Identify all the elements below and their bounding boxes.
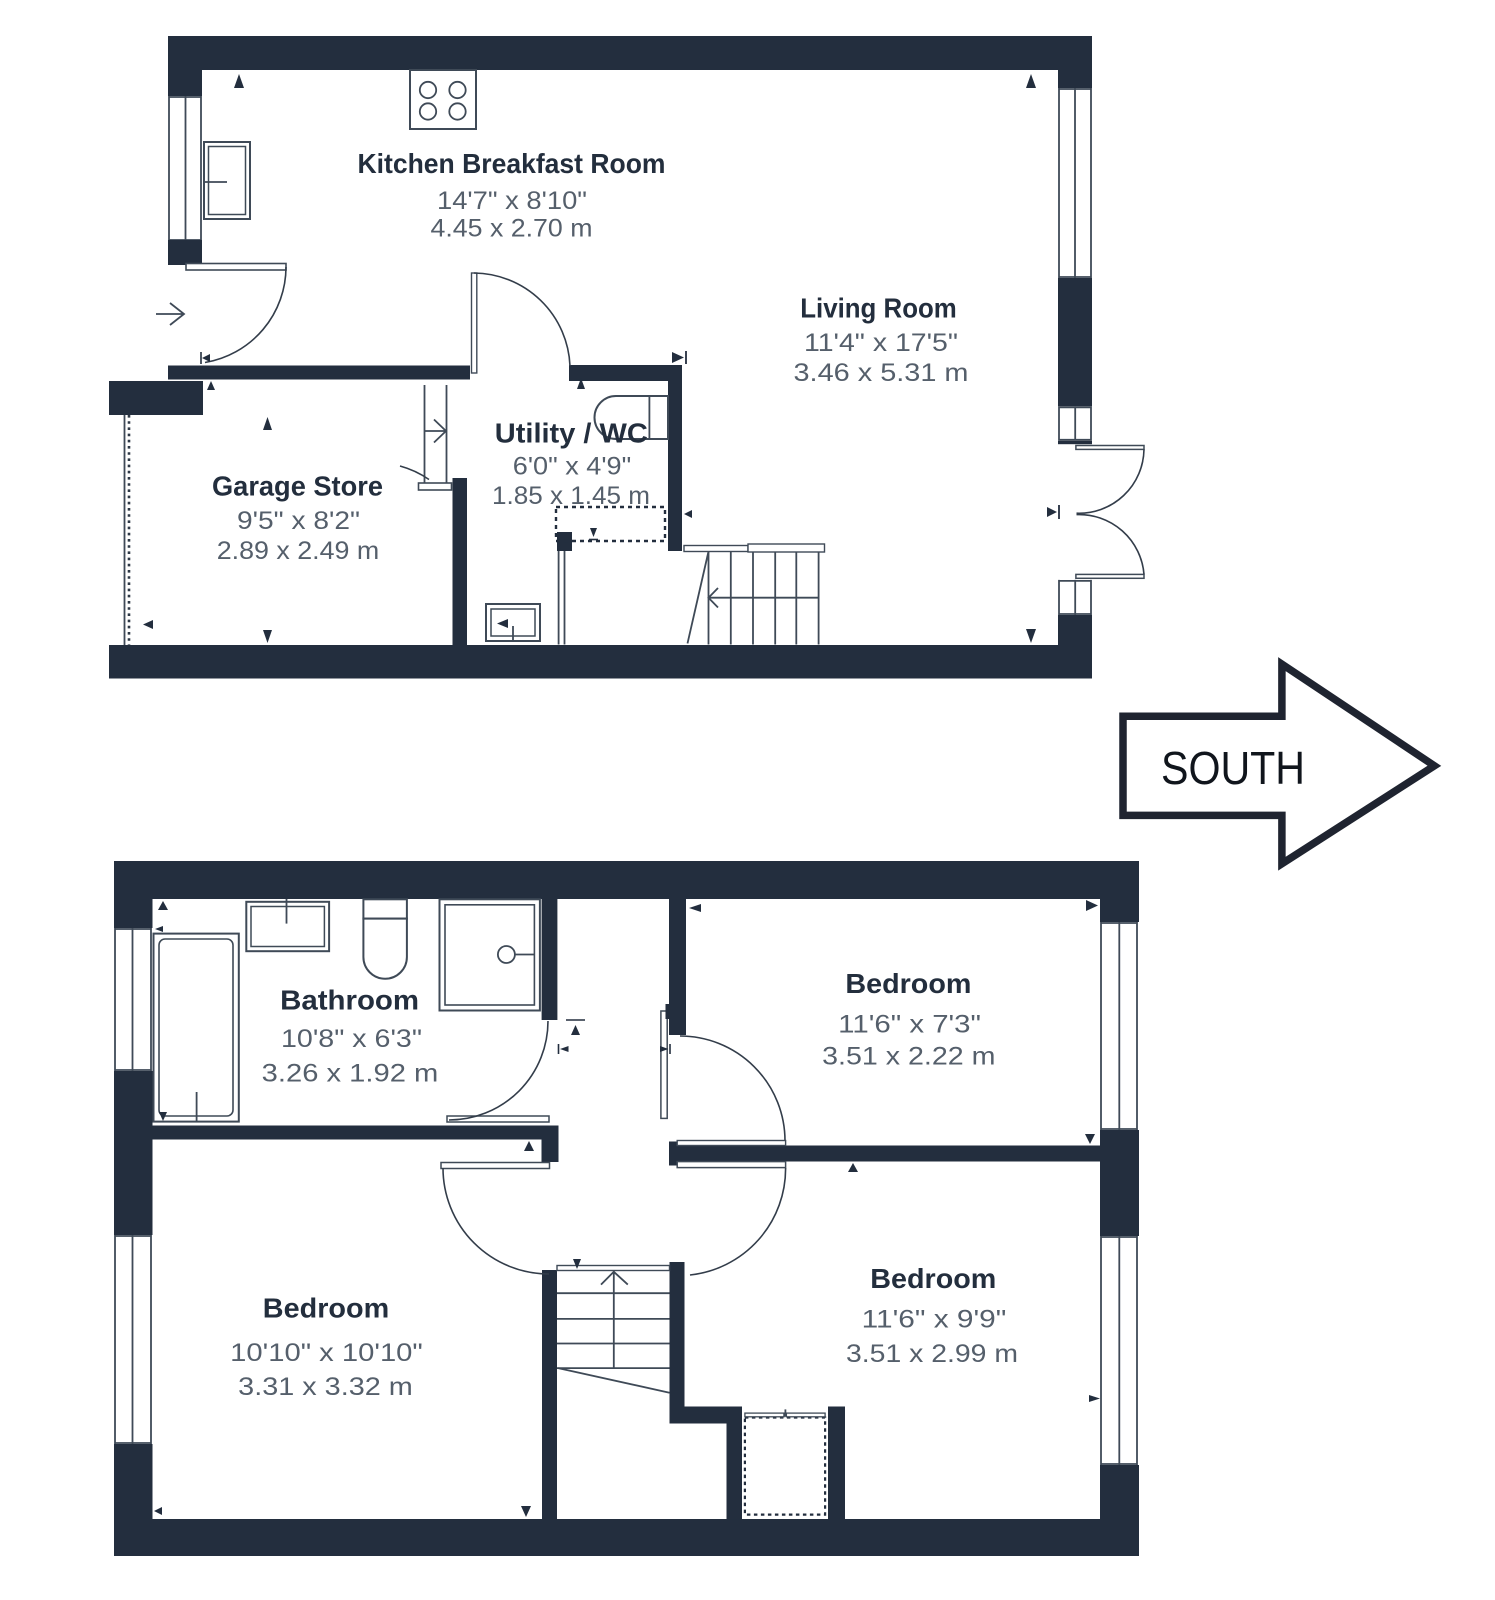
svg-text:3.31 x 3.32 m: 3.31 x 3.32 m <box>238 1373 413 1401</box>
svg-text:10'10" x 10'10": 10'10" x 10'10" <box>230 1339 423 1367</box>
svg-text:3.26 x 1.92 m: 3.26 x 1.92 m <box>262 1060 439 1088</box>
svg-text:9'5" x 8'2": 9'5" x 8'2" <box>237 507 360 535</box>
svg-text:10'8" x 6'3": 10'8" x 6'3" <box>281 1025 422 1053</box>
svg-text:Bathroom: Bathroom <box>280 985 419 1016</box>
svg-text:6'0" x 4'9": 6'0" x 4'9" <box>513 453 631 481</box>
svg-text:Living Room: Living Room <box>800 292 957 323</box>
svg-text:11'4" x 17'5": 11'4" x 17'5" <box>804 329 958 357</box>
svg-text:Kitchen Breakfast Room: Kitchen Breakfast Room <box>358 148 666 179</box>
svg-text:3.51 x 2.22 m: 3.51 x 2.22 m <box>822 1043 995 1071</box>
svg-text:4.45 x 2.70 m: 4.45 x 2.70 m <box>431 214 593 242</box>
svg-text:Bedroom: Bedroom <box>263 1293 389 1324</box>
svg-text:Garage Store: Garage Store <box>212 471 383 502</box>
svg-text:Bedroom: Bedroom <box>870 1263 996 1294</box>
svg-text:11'6" x 7'3": 11'6" x 7'3" <box>838 1011 981 1039</box>
svg-text:3.51 x 2.99 m: 3.51 x 2.99 m <box>846 1340 1018 1368</box>
svg-text:1.85 x 1.45 m: 1.85 x 1.45 m <box>492 482 650 510</box>
svg-text:2.89 x 2.49 m: 2.89 x 2.49 m <box>217 537 380 565</box>
svg-text:Utility / WC: Utility / WC <box>495 418 648 449</box>
svg-text:3.46 x 5.31 m: 3.46 x 5.31 m <box>794 359 969 387</box>
svg-text:SOUTH: SOUTH <box>1161 742 1305 794</box>
svg-text:Bedroom: Bedroom <box>845 968 971 999</box>
svg-text:14'7" x 8'10": 14'7" x 8'10" <box>437 187 587 215</box>
svg-text:11'6" x 9'9": 11'6" x 9'9" <box>862 1306 1007 1334</box>
